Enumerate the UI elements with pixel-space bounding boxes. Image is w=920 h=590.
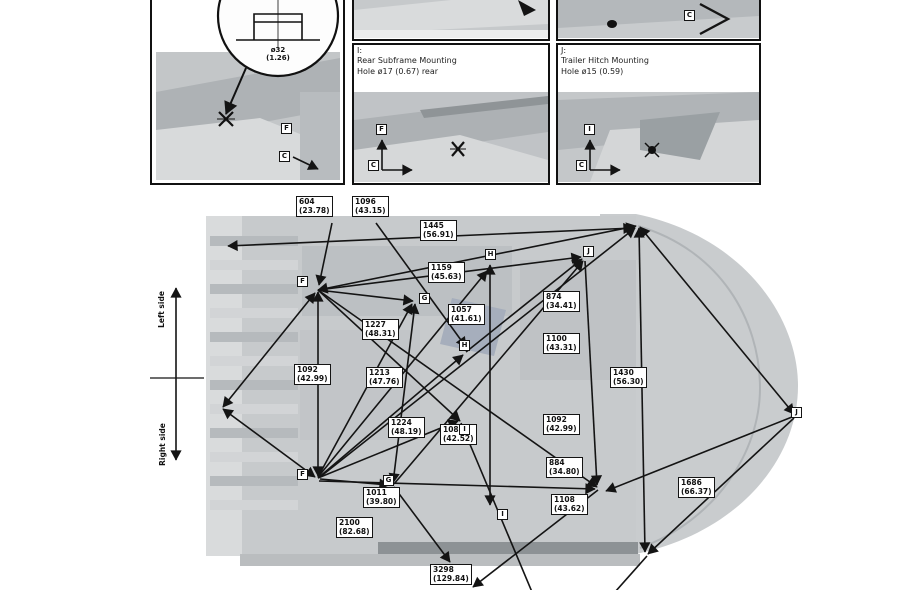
dimension-box: 1430 (56.30) xyxy=(610,367,647,388)
point-marker: I xyxy=(497,509,508,520)
panel-c-photo xyxy=(558,92,759,182)
dimension-box: 1445 (56.91) xyxy=(420,220,457,241)
dimension-box: 1227 (48.31) xyxy=(362,319,399,340)
point-marker: G xyxy=(419,293,430,304)
panel-b-subtitle: Hole ø17 (0.67) rear xyxy=(357,67,457,77)
point-marker: J xyxy=(791,407,802,418)
callout-in: (1.26) xyxy=(252,54,304,62)
dimension-in: (56.91) xyxy=(423,231,454,240)
dimension-in: (42.99) xyxy=(546,425,577,434)
panel-b-top-photo xyxy=(354,0,548,38)
dimension-box: 1100 (43.31) xyxy=(543,333,580,354)
panel-b-axis-label: C xyxy=(368,160,379,171)
panel-b-photo xyxy=(354,92,548,182)
point-marker: H xyxy=(485,249,496,260)
dimension-in: (45.63) xyxy=(431,273,462,282)
dimension-in: (34.80) xyxy=(549,468,580,477)
hole-diameter-callout: ø32 (1.26) xyxy=(252,46,304,63)
dimension-box: 1096 (43.15) xyxy=(352,196,389,217)
panel-c-key: J: xyxy=(561,46,649,56)
left-side-label: Left side xyxy=(157,291,166,328)
dimension-box: 1159 (45.63) xyxy=(428,262,465,283)
dimension-box: 1011 (39.80) xyxy=(363,487,400,508)
dimension-box: 1092 (42.99) xyxy=(543,414,580,435)
dimension-box: 3298 (129.84) xyxy=(430,564,472,585)
dimension-box: 1092 (42.99) xyxy=(294,364,331,385)
panel-c-axis-label: C xyxy=(576,160,587,171)
panel-c-header: J: Trailer Hitch Mounting Hole ø15 (0.59… xyxy=(561,46,649,77)
panel-a-photo xyxy=(156,52,340,180)
dimension-box: 1213 (47.76) xyxy=(366,367,403,388)
point-marker: I xyxy=(459,424,470,435)
panel-c-subtitle: Hole ø15 (0.59) xyxy=(561,67,649,77)
dimension-box: 2100 (82.68) xyxy=(336,517,373,538)
underbody-dimensions-diagram: I: Rear Subframe Mounting Hole ø17 (0.67… xyxy=(0,0,920,590)
panel-b-title: Rear Subframe Mounting xyxy=(357,56,457,66)
dimension-box: 1108 (43.62) xyxy=(551,494,588,515)
right-side-label: Right side xyxy=(158,423,167,466)
callout-mm: ø32 xyxy=(252,46,304,54)
panel-a-axis-label: C xyxy=(279,151,290,162)
dimension-in: (23.78) xyxy=(299,207,330,216)
dimension-box: 1686 (66.37) xyxy=(678,477,715,498)
dimension-box: 874 (34.41) xyxy=(543,291,580,312)
point-marker: F xyxy=(297,469,308,480)
diagram-artwork xyxy=(0,0,920,590)
dimension-in: (43.15) xyxy=(355,207,386,216)
dimension-in: (66.37) xyxy=(681,488,712,497)
dimension-in: (43.62) xyxy=(554,505,585,514)
point-marker: J xyxy=(583,246,594,257)
panel-c-title: Trailer Hitch Mounting xyxy=(561,56,649,66)
point-marker: F xyxy=(297,276,308,287)
panel-c-point-marker: I xyxy=(584,124,595,135)
panel-a-point-marker: F xyxy=(281,123,292,134)
panel-b-key: I: xyxy=(357,46,457,56)
dimension-box: 884 (34.80) xyxy=(546,457,583,478)
dimension-box: 1224 (48.19) xyxy=(388,417,425,438)
dimension-in: (48.19) xyxy=(391,428,422,437)
dimension-in: (39.80) xyxy=(366,498,397,507)
dimension-in: (129.84) xyxy=(433,575,469,584)
dimension-in: (42.99) xyxy=(297,375,328,384)
panel-b-header: I: Rear Subframe Mounting Hole ø17 (0.67… xyxy=(357,46,457,77)
point-marker: H xyxy=(459,340,470,351)
point-marker: G xyxy=(383,475,394,486)
panel-b-point-marker: F xyxy=(376,124,387,135)
dimension-in: (47.76) xyxy=(369,378,400,387)
dimension-in: (34.41) xyxy=(546,302,577,311)
dimension-box: 1057 (41.61) xyxy=(448,304,485,325)
dimension-in: (41.61) xyxy=(451,315,482,324)
dimension-in: (82.68) xyxy=(339,528,370,537)
panel-c-top-axis-label: C xyxy=(684,10,695,21)
dimension-in: (43.31) xyxy=(546,344,577,353)
dimension-in: (56.30) xyxy=(613,378,644,387)
dimension-in: (48.31) xyxy=(365,330,396,339)
panel-c-top-photo xyxy=(558,0,759,38)
dimension-box: 604 (23.78) xyxy=(296,196,333,217)
dimension-in: (42.52) xyxy=(443,435,474,444)
